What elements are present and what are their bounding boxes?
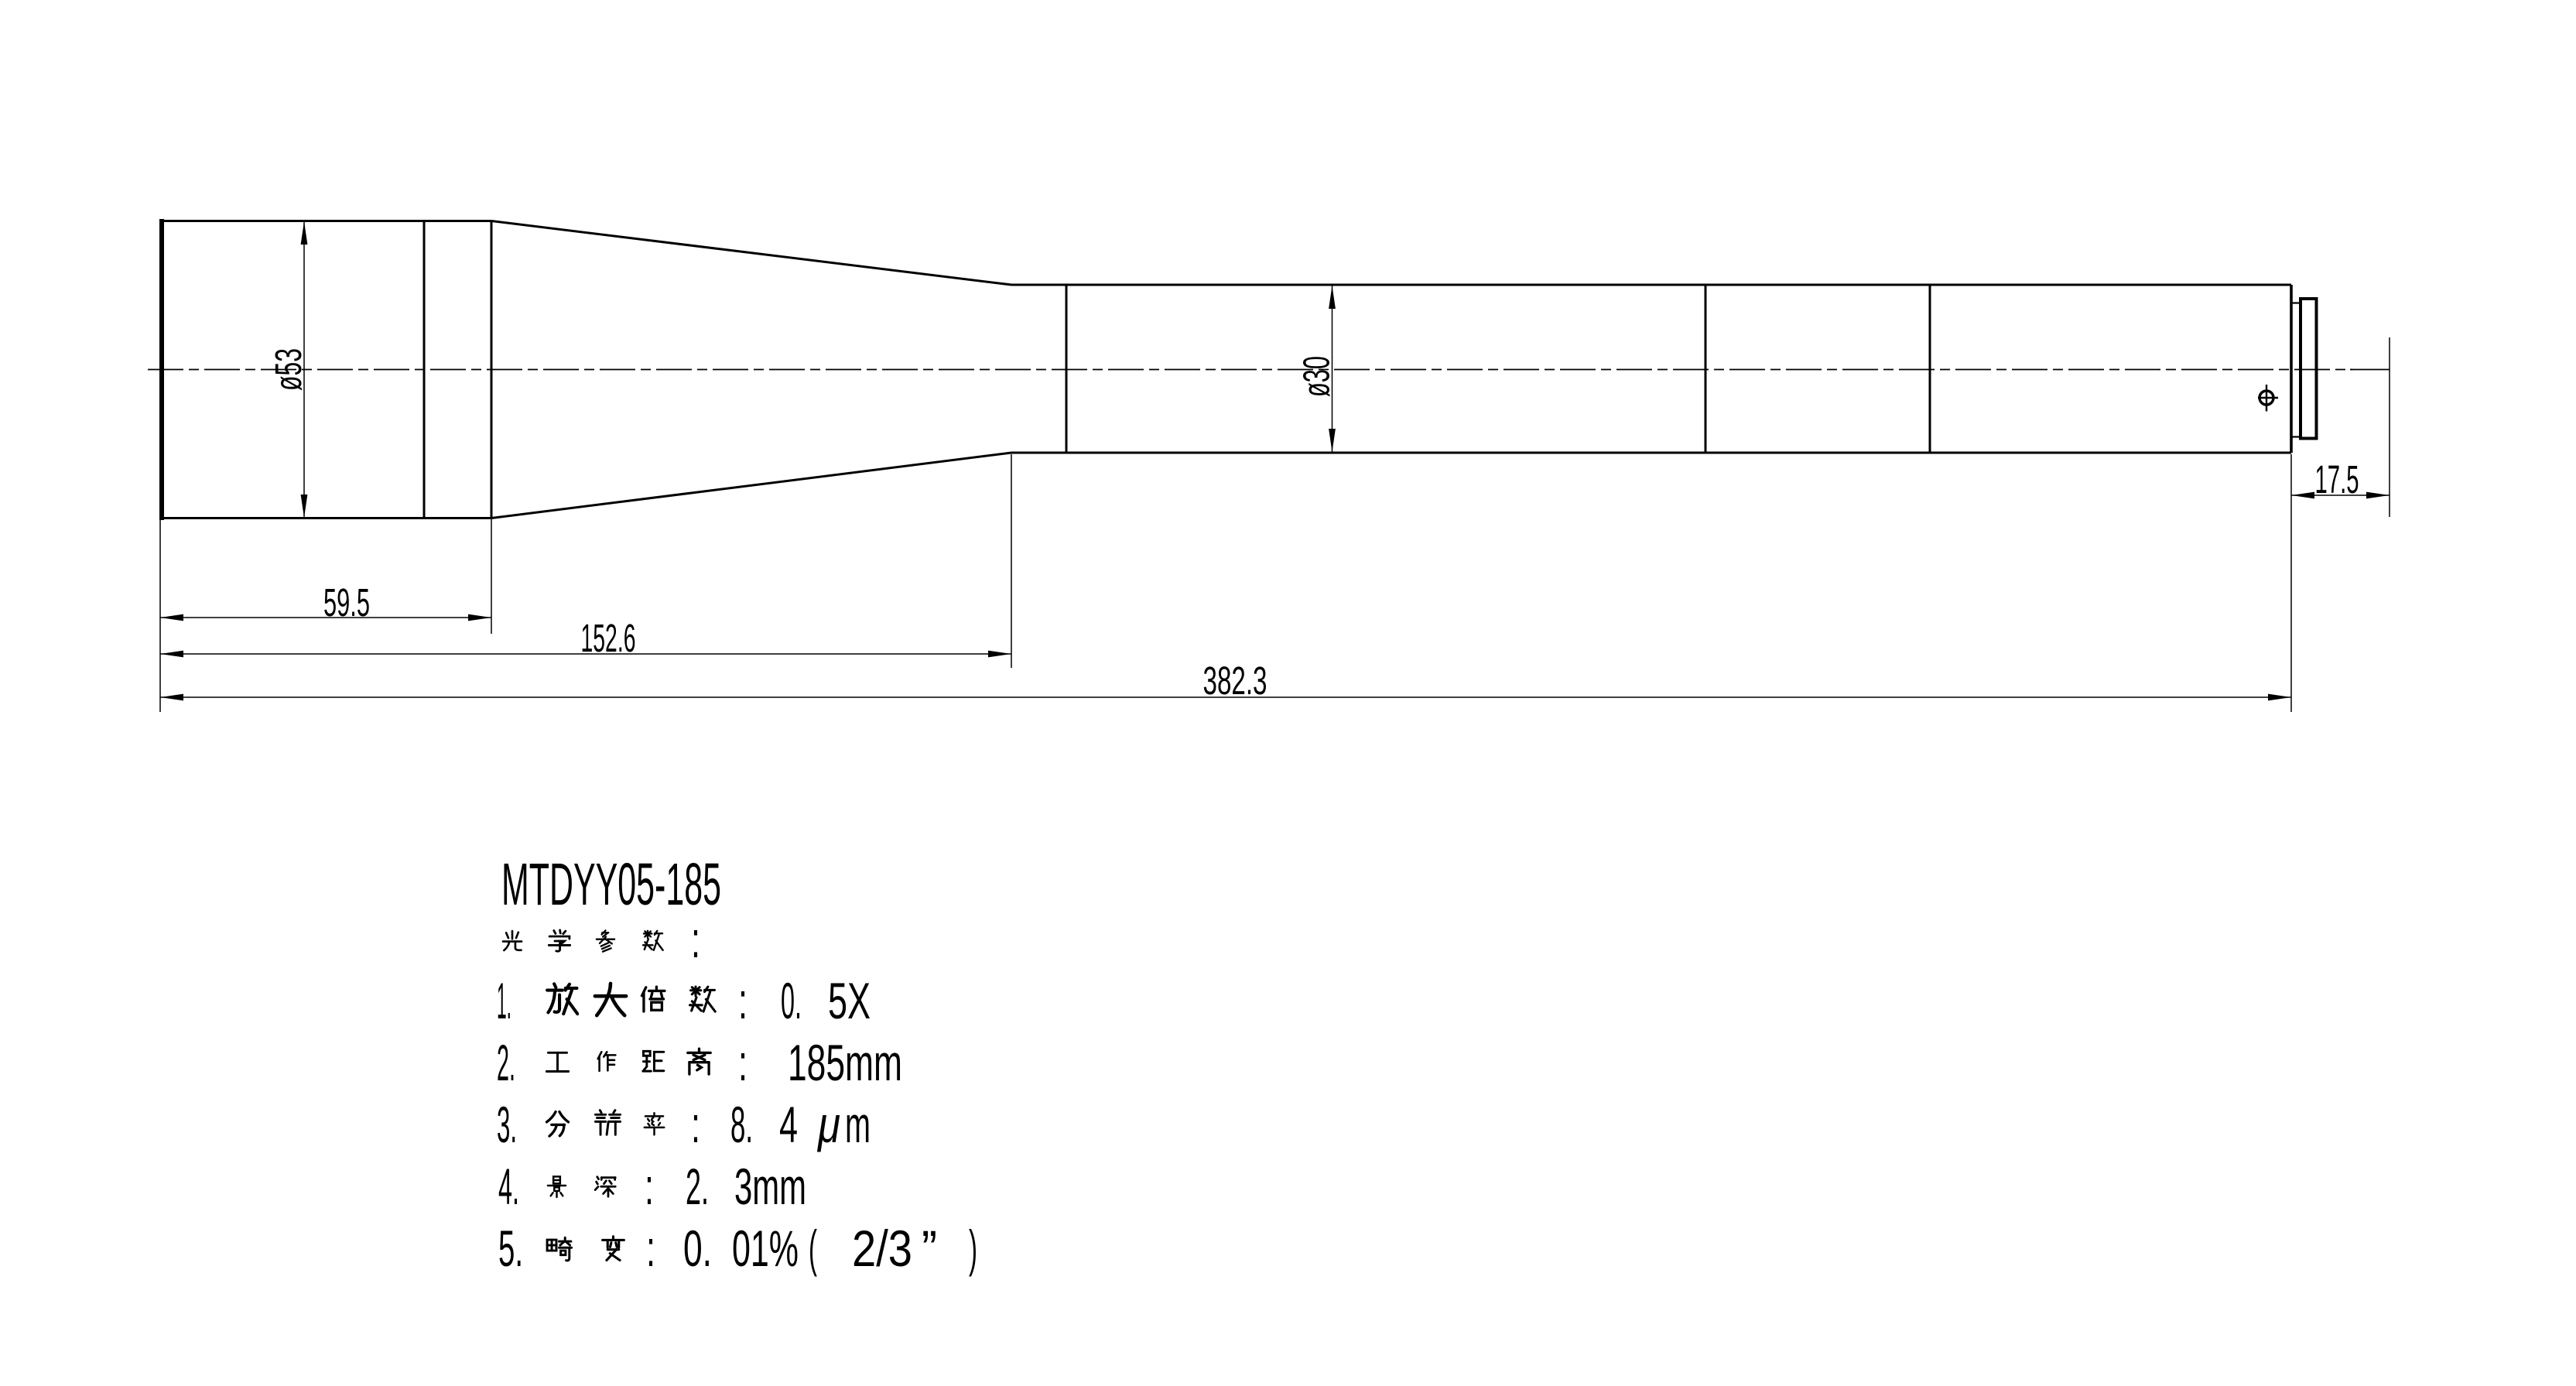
- svg-text:0.: 0.: [781, 972, 802, 1029]
- svg-text:3mm: 3mm: [734, 1158, 806, 1215]
- svg-text:152.6: 152.6: [581, 616, 636, 660]
- svg-text:2.: 2.: [686, 1158, 709, 1215]
- svg-text:2.: 2.: [497, 1034, 515, 1091]
- svg-text::: :: [691, 1096, 700, 1153]
- svg-text:3.: 3.: [497, 1096, 517, 1153]
- svg-text:MTDYY05-185: MTDYY05-185: [501, 851, 721, 918]
- svg-text:5.: 5.: [498, 1220, 523, 1277]
- svg-text:382.3: 382.3: [1203, 659, 1267, 703]
- svg-text:ø53: ø53: [269, 348, 310, 391]
- svg-text:01%: 01%: [732, 1220, 799, 1277]
- svg-text:2/3: 2/3: [852, 1220, 912, 1277]
- svg-text::: :: [646, 1220, 655, 1277]
- svg-text:59.5: 59.5: [323, 580, 370, 625]
- svg-text:(: (: [809, 1220, 817, 1277]
- svg-text:1.: 1.: [497, 972, 511, 1029]
- svg-text:4.: 4.: [498, 1158, 519, 1215]
- svg-text:m: m: [845, 1096, 871, 1153]
- svg-text:μ: μ: [816, 1096, 840, 1153]
- svg-text:4: 4: [779, 1096, 798, 1153]
- svg-text::: :: [738, 1034, 747, 1091]
- svg-text:”: ”: [922, 1220, 937, 1277]
- svg-text:185mm: 185mm: [788, 1034, 902, 1091]
- svg-text:17.5: 17.5: [2315, 457, 2359, 501]
- svg-text:5X: 5X: [828, 972, 871, 1029]
- svg-text::: :: [691, 911, 700, 968]
- svg-text:): ): [969, 1220, 977, 1277]
- svg-text:8.: 8.: [730, 1096, 753, 1153]
- svg-text:0.: 0.: [683, 1220, 712, 1277]
- svg-text::: :: [645, 1158, 654, 1215]
- svg-text::: :: [738, 972, 747, 1029]
- svg-text:ø30: ø30: [1297, 356, 1338, 397]
